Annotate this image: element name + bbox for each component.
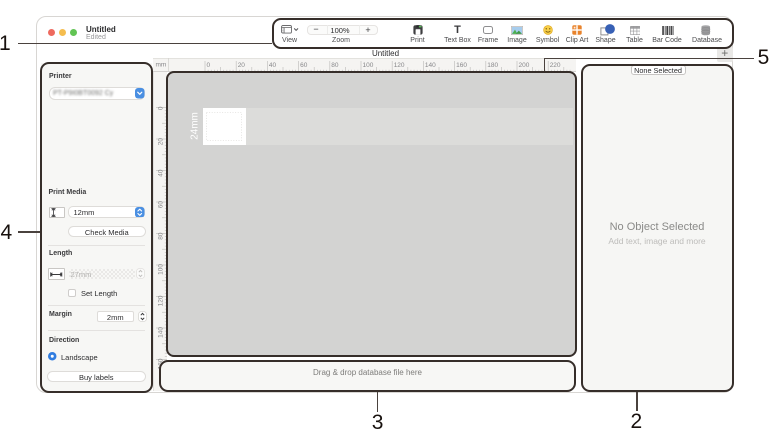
svg-text:220: 220 xyxy=(549,62,560,69)
svg-text:60: 60 xyxy=(157,200,164,208)
svg-text:160: 160 xyxy=(456,62,467,69)
svg-text:120: 120 xyxy=(393,62,404,69)
svg-text:180: 180 xyxy=(487,62,498,69)
svg-text:40: 40 xyxy=(157,169,164,177)
svg-text:100: 100 xyxy=(362,62,373,69)
svg-text:60: 60 xyxy=(300,62,308,69)
svg-text:100: 100 xyxy=(157,263,164,274)
svg-text:0: 0 xyxy=(157,106,164,110)
svg-text:20: 20 xyxy=(237,62,245,69)
svg-text:80: 80 xyxy=(331,62,339,69)
svg-text:140: 140 xyxy=(157,326,164,337)
svg-text:20: 20 xyxy=(157,137,164,145)
svg-text:140: 140 xyxy=(424,62,435,69)
svg-text:200: 200 xyxy=(518,62,529,69)
svg-text:40: 40 xyxy=(268,62,276,69)
svg-text:0: 0 xyxy=(206,62,210,69)
svg-text:120: 120 xyxy=(157,295,164,306)
svg-text:mm: mm xyxy=(155,61,166,68)
svg-text:80: 80 xyxy=(157,232,164,240)
